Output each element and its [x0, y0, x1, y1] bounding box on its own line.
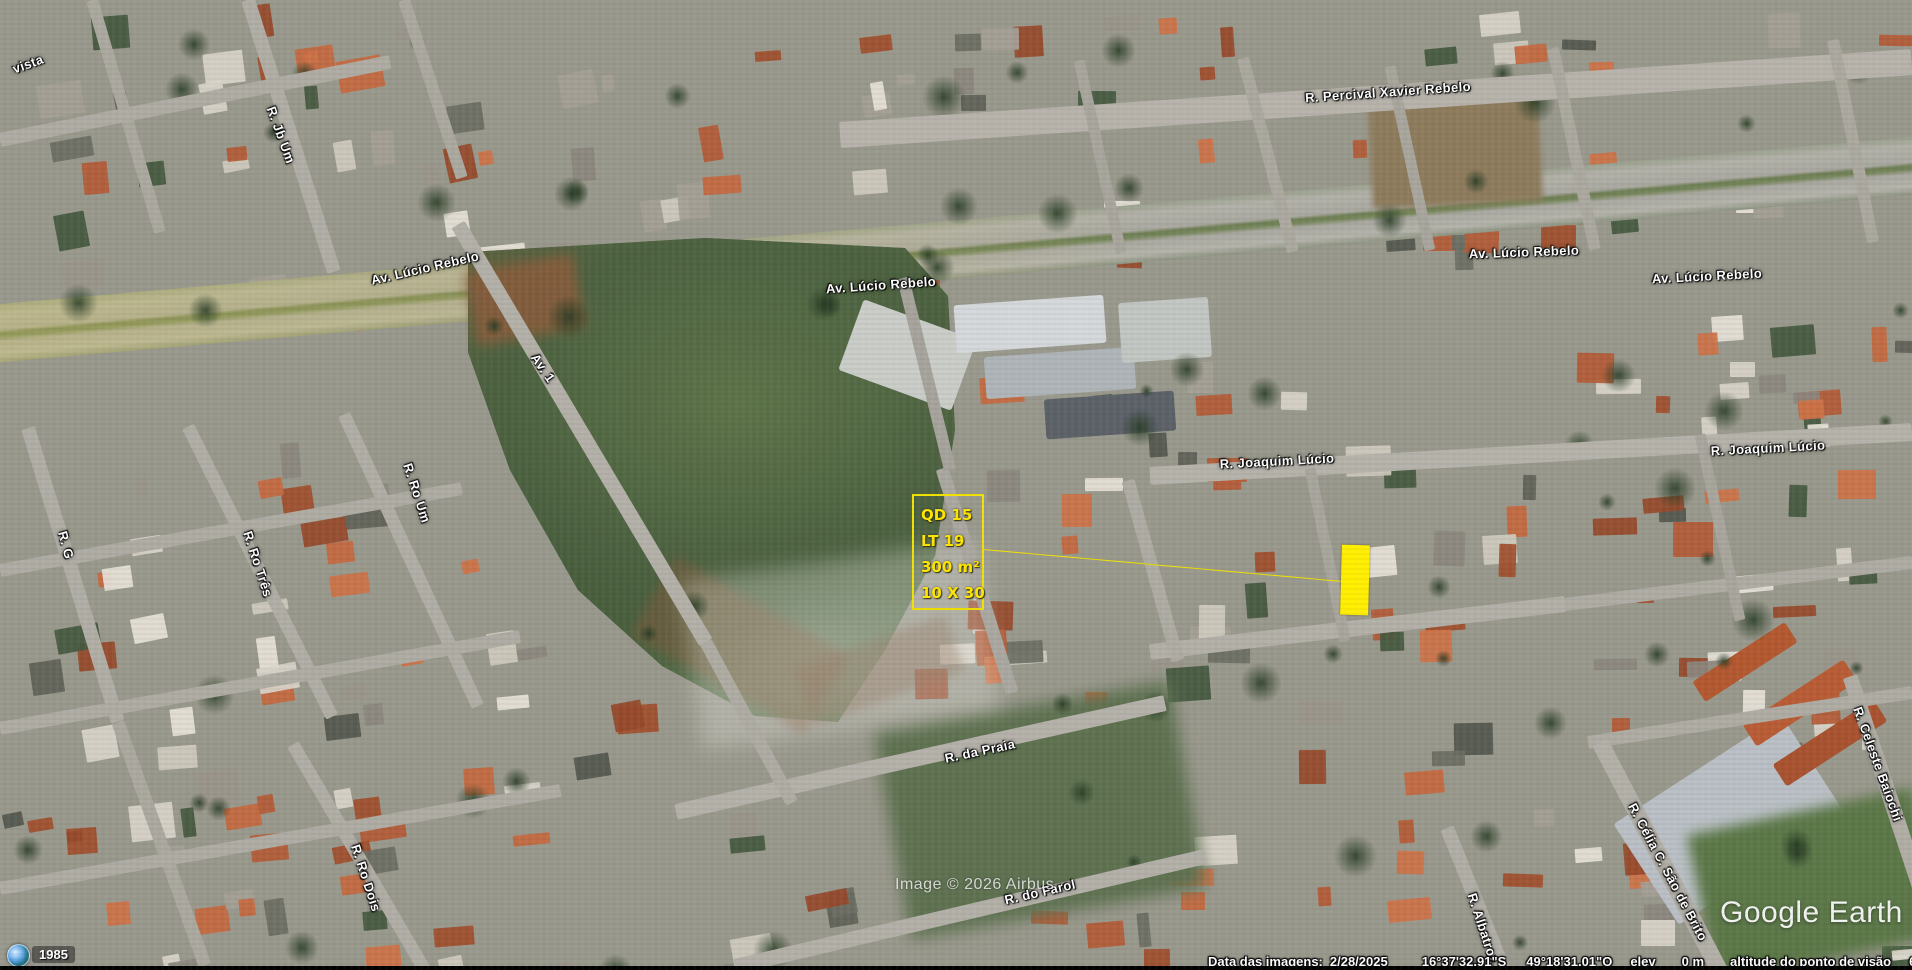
map-viewport[interactable]: R. Percival Xavier RebeloAv. Lúcio Rebel… — [0, 0, 1912, 970]
history-globe-icon[interactable] — [7, 944, 30, 967]
google-earth-logo: Google Earth — [1720, 896, 1903, 930]
overlay-layer: Image © 2026 Airbus Google Earth 1985 Da… — [0, 0, 1912, 970]
imagery-credit: Image © 2026 Airbus — [895, 876, 1054, 894]
bottom-edge — [0, 966, 1912, 970]
history-year-badge[interactable]: 1985 — [32, 946, 75, 963]
